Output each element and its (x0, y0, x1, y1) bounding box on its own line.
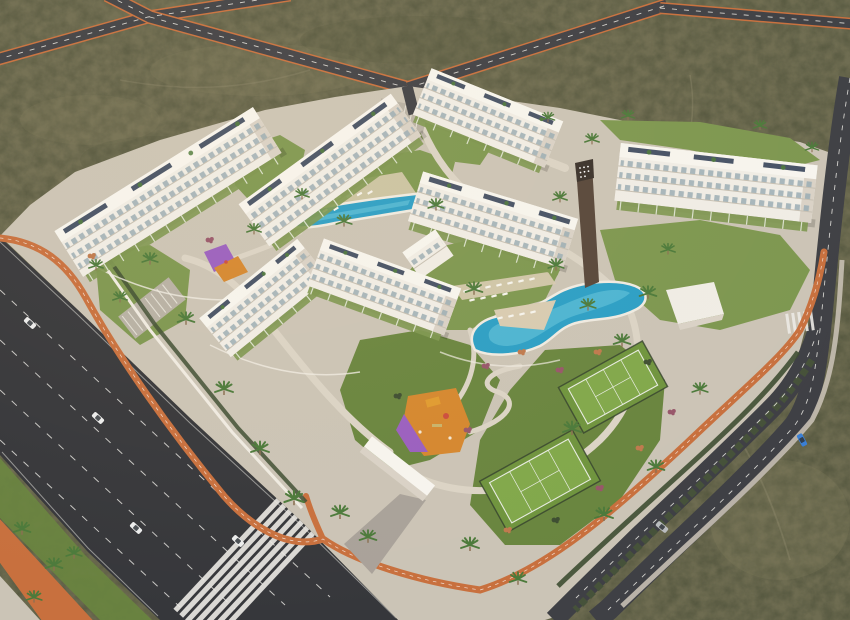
render-canvas (0, 0, 850, 620)
lighting-overlay (0, 0, 850, 620)
aerial-render (0, 0, 850, 620)
